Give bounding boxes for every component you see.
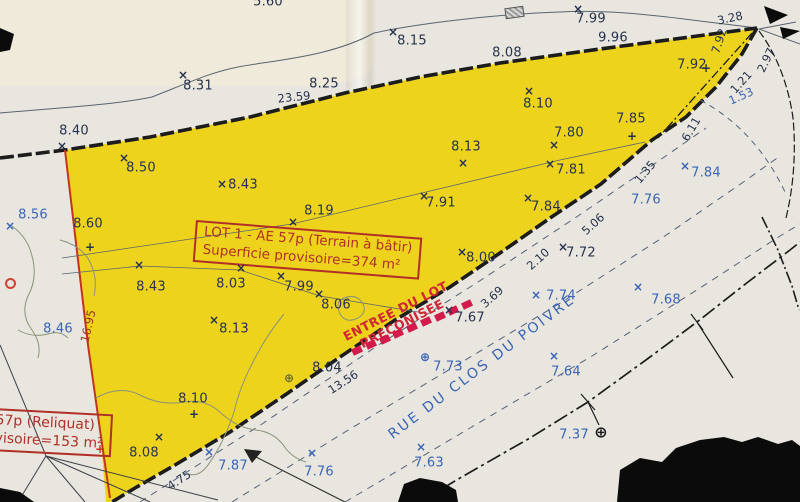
east-axis-dashdot	[762, 217, 799, 310]
elevation-label: 8.08	[129, 446, 159, 461]
point-marker: ×	[388, 25, 398, 39]
elevation-label: 7.67	[455, 311, 485, 326]
scan-mark-top-left	[0, 28, 14, 52]
shadow-blob-bottom-mid	[398, 478, 458, 502]
elevation-label: 8.03	[216, 277, 246, 292]
elevation-label: 7.74	[546, 289, 576, 304]
north-arrow-mark-1	[764, 6, 788, 24]
point-marker: ×	[134, 258, 144, 272]
partial-elevation-label: 5.60	[253, 0, 283, 10]
red-cross-tick: +	[95, 442, 105, 456]
point-marker: ×	[444, 303, 454, 317]
cadastral-plan: LOT 1 - AE 57p (Terrain à bâtir) Superfi…	[0, 0, 800, 502]
elevation-label: 7.37	[559, 428, 589, 443]
point-marker: ×	[545, 157, 555, 171]
elevation-label: 8.10	[523, 97, 553, 112]
point-marker: ⊕	[284, 371, 294, 385]
elevation-label: 8.50	[126, 161, 156, 176]
elevation-label: 8.43	[228, 178, 258, 193]
point-marker: ×	[457, 245, 467, 259]
elevation-label: 8.08	[492, 46, 522, 61]
point-marker: ×	[178, 68, 188, 82]
elevation-label: 8.60	[73, 217, 103, 232]
point-marker: ×	[523, 191, 533, 205]
elevation-label: 7.76	[304, 465, 334, 480]
point-marker: ×	[633, 280, 643, 294]
elevation-label: 7.81	[556, 163, 586, 178]
contour-squiggle-1	[12, 226, 39, 358]
point-marker: ×	[680, 159, 690, 173]
axis-tick-2	[581, 394, 599, 425]
point-marker: ×	[524, 84, 534, 98]
shadow-blob-bottom-right	[617, 437, 800, 502]
elevation-label: 7.91	[426, 196, 456, 211]
point-marker: ×	[416, 440, 426, 454]
point-marker: ×	[204, 445, 214, 459]
point-marker: ⊕	[420, 350, 430, 364]
elevation-label: 8.46	[43, 322, 73, 337]
point-marker: ×	[531, 288, 541, 302]
elevation-label: 8.25	[309, 77, 339, 92]
point-marker: ×	[419, 189, 429, 203]
elevation-label: 8.13	[451, 140, 481, 155]
elevation-label: 7.76	[631, 193, 661, 208]
point-marker: ×	[549, 138, 559, 152]
elevation-label: 9.96	[598, 31, 628, 46]
point-marker: ×	[314, 287, 324, 301]
elevation-label: 8.19	[304, 204, 334, 219]
elevation-label: 7.85	[616, 112, 646, 127]
point-marker: ×	[209, 313, 219, 327]
point-marker: ×	[217, 177, 227, 191]
elevation-label: 7.87	[218, 459, 248, 474]
point-marker: ×	[154, 430, 164, 444]
elevation-label: 7.84	[531, 200, 561, 215]
point-marker: ×	[236, 261, 246, 275]
elevation-label: 8.13	[219, 322, 249, 337]
axis-tick-1	[691, 314, 733, 378]
point-marker: ×	[119, 151, 129, 165]
small-red-circle-mark	[5, 278, 16, 289]
point-marker: ×	[307, 446, 317, 460]
point-marker: +	[627, 129, 637, 143]
point-marker: ×	[458, 156, 468, 170]
elevation-label: 8.56	[18, 208, 48, 223]
point-marker: ×	[573, 2, 583, 16]
elevation-label: 8.00	[466, 251, 496, 266]
elevation-label: 7.99	[284, 280, 314, 295]
elevation-label: 7.72	[566, 246, 596, 261]
point-marker: +	[701, 61, 711, 75]
point-marker: ×	[57, 139, 67, 153]
elevation-label: 8.15	[397, 34, 427, 49]
north-arrow-mark-2	[780, 27, 800, 39]
point-marker: ×	[5, 219, 15, 233]
point-marker: ×	[549, 349, 559, 363]
tip-radial-line-2	[759, 22, 796, 29]
elevation-label: 7.84	[691, 166, 721, 181]
shadow-corner-bottom-left	[0, 488, 34, 502]
elevation-label: 8.04	[312, 361, 342, 376]
point-marker: ×	[558, 240, 568, 254]
point-marker: +	[85, 240, 95, 254]
point-marker: +	[189, 407, 199, 421]
elevation-label: 7.63	[414, 456, 444, 471]
point-marker: ×	[288, 215, 298, 229]
point-marker: ⊕	[594, 423, 607, 442]
elevation-label: 7.73	[433, 360, 463, 375]
elevation-label: 7.68	[651, 293, 681, 308]
elevation-label: 7.64	[551, 365, 581, 380]
elevation-label: 8.10	[178, 392, 208, 407]
point-marker: ×	[276, 269, 286, 283]
elevation-label: 8.06	[321, 298, 351, 313]
elevation-label: 8.43	[136, 280, 166, 295]
elevation-label: 8.40	[59, 124, 89, 139]
